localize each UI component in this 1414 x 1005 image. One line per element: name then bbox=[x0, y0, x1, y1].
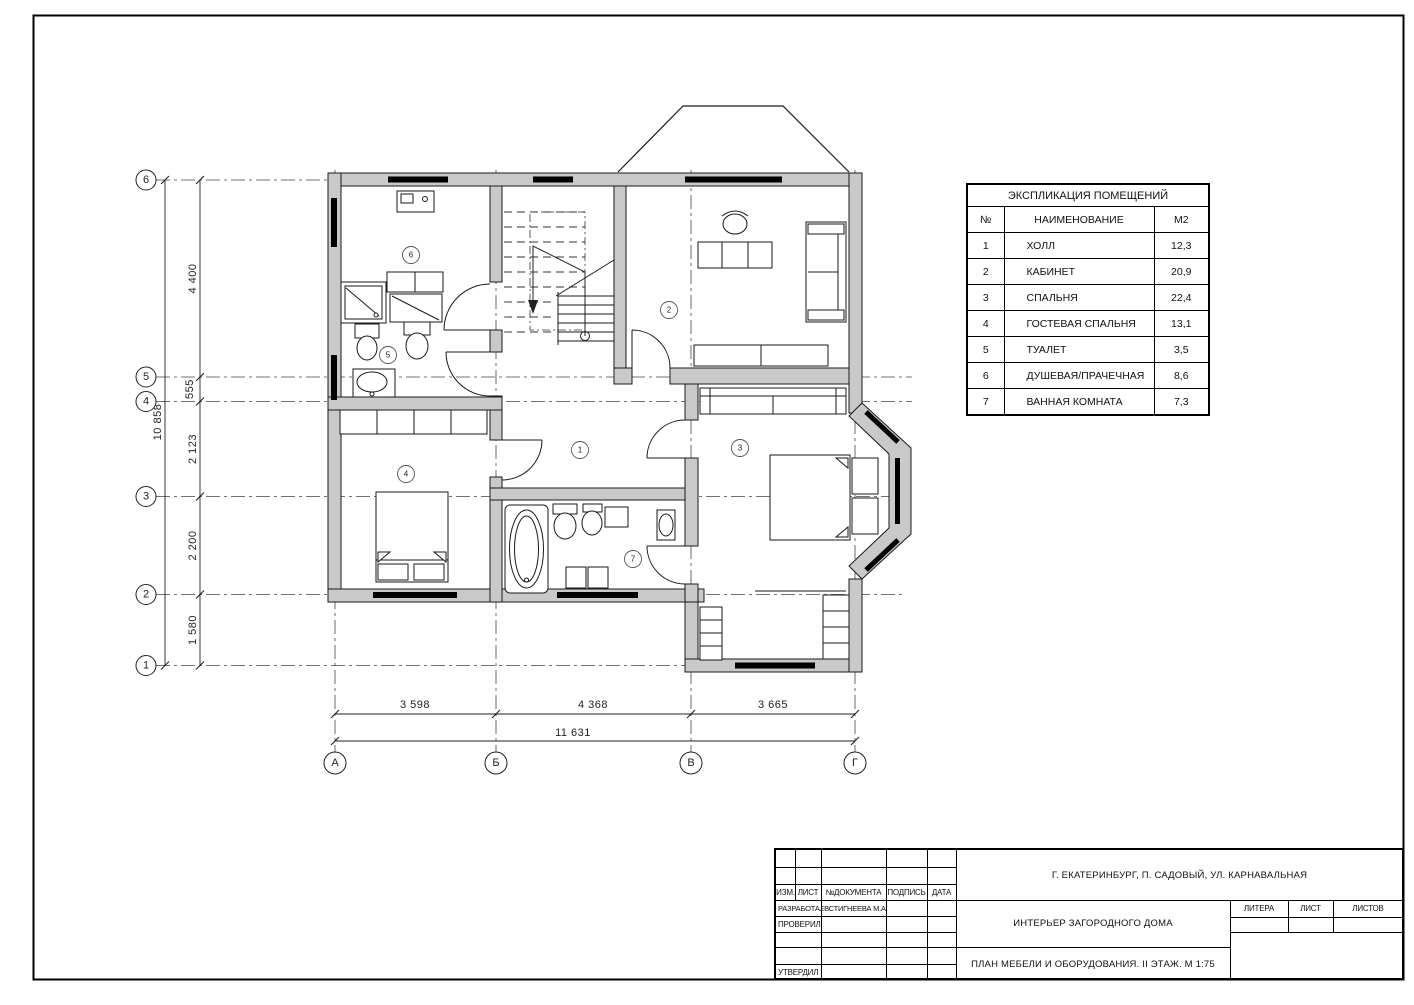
roof-outline bbox=[618, 106, 849, 172]
room-name: ХОЛЛ bbox=[1004, 233, 1154, 259]
col-header-num: № bbox=[967, 207, 1004, 233]
room-number-hall: 1 bbox=[578, 446, 583, 455]
axis-1: 1 bbox=[143, 660, 149, 672]
room-area: 7,3 bbox=[1154, 389, 1209, 416]
table-row: 6ДУШЕВАЯ/ПРАЧЕЧНАЯ8,6 bbox=[967, 363, 1209, 389]
table-row: 3СПАЛЬНЯ22,4 bbox=[967, 285, 1209, 311]
dimension-labels-bottom: 3 598 4 368 3 665 11 631 bbox=[400, 699, 788, 739]
tb-label-listov: ЛИСТОВ bbox=[1333, 900, 1403, 917]
room-name: ДУШЕВАЯ/ПРАЧЕЧНАЯ bbox=[1004, 363, 1154, 389]
tb-label-doc: №ДОКУМЕНТА bbox=[821, 884, 886, 900]
room-name: ВАННАЯ КОМНАТА bbox=[1004, 389, 1154, 416]
dim-5-4: 555 bbox=[184, 379, 196, 399]
room-num: 3 bbox=[967, 285, 1004, 311]
sheet-frame bbox=[34, 16, 1404, 980]
tb-label-data: ДАТА bbox=[927, 884, 956, 900]
axis-a: А bbox=[331, 757, 339, 769]
explication-title: ЭКСПЛИКАЦИЯ ПОМЕЩЕНИЙ bbox=[967, 184, 1209, 207]
room-number-shower: 6 bbox=[409, 251, 414, 260]
dimension-lines-left bbox=[161, 176, 204, 670]
axis-2: 2 bbox=[143, 589, 149, 601]
room-name: ГОСТЕВАЯ СПАЛЬНЯ bbox=[1004, 311, 1154, 337]
room-area: 8,6 bbox=[1154, 363, 1209, 389]
room-name: СПАЛЬНЯ bbox=[1004, 285, 1154, 311]
dim-bottom-total: 11 631 bbox=[555, 727, 591, 739]
room-number-wc: 5 bbox=[386, 351, 391, 360]
dim-a-b: 3 598 bbox=[400, 699, 430, 711]
dimension-lines-bottom bbox=[331, 710, 859, 745]
room-num: 5 bbox=[967, 337, 1004, 363]
room-area: 22,4 bbox=[1154, 285, 1209, 311]
room-area: 20,9 bbox=[1154, 259, 1209, 285]
room-num: 1 bbox=[967, 233, 1004, 259]
dim-4-3: 2 123 bbox=[187, 434, 199, 464]
explication-header-row: № НАИМЕНОВАНИЕ М2 bbox=[967, 207, 1209, 233]
table-row: 4ГОСТЕВАЯ СПАЛЬНЯ13,1 bbox=[967, 311, 1209, 337]
staircase bbox=[504, 212, 614, 345]
tb-label-razrabotal: РАЗРАБОТАЛ bbox=[776, 900, 823, 916]
room-num: 7 bbox=[967, 389, 1004, 416]
room-num: 4 bbox=[967, 311, 1004, 337]
dim-v-g: 3 665 bbox=[758, 699, 788, 711]
room-number-cabinet: 2 bbox=[667, 306, 672, 315]
table-row: 5ТУАЛЕТ3,5 bbox=[967, 337, 1209, 363]
table-row: 7ВАННАЯ КОМНАТА7,3 bbox=[967, 389, 1209, 416]
room-name: ТУАЛЕТ bbox=[1004, 337, 1154, 363]
table-row: 1ХОЛЛ12,3 bbox=[967, 233, 1209, 259]
dim-left-total: 10 858 bbox=[152, 404, 164, 441]
room-area: 13,1 bbox=[1154, 311, 1209, 337]
tb-label-izm: ИЗМ. bbox=[776, 884, 795, 900]
dim-6-5: 4 400 bbox=[187, 263, 199, 293]
axis-g: Г bbox=[852, 757, 858, 769]
table-row: 2КАБИНЕТ20,9 bbox=[967, 259, 1209, 285]
dim-b-v: 4 368 bbox=[578, 699, 608, 711]
axis-b: Б bbox=[492, 757, 499, 769]
title-block: ИЗМ. ЛИСТ №ДОКУМЕНТА ПОДПИСЬ ДАТА РАЗРАБ… bbox=[774, 848, 1404, 980]
dim-2-1: 1 580 bbox=[187, 615, 199, 645]
dimension-labels-left: 4 400 555 2 123 2 200 1 580 10 858 bbox=[152, 263, 199, 645]
tb-label-list2: ЛИСТ bbox=[1288, 900, 1333, 917]
room-area: 3,5 bbox=[1154, 337, 1209, 363]
room-num: 6 bbox=[967, 363, 1004, 389]
room-number-bath: 7 bbox=[631, 555, 636, 564]
axis-5: 5 bbox=[143, 371, 149, 383]
tb-label-litera: ЛИТЕРА bbox=[1230, 900, 1288, 917]
tb-sheet-title: ПЛАН МЕБЕЛИ И ОБОРУДОВАНИЯ. II ЭТАЖ. М 1… bbox=[956, 947, 1230, 982]
tb-address: Г. ЕКАТЕРИНБУРГ, П. САДОВЫЙ, УЛ. КАРНАВА… bbox=[956, 850, 1403, 900]
axis-6: 6 bbox=[143, 174, 149, 186]
room-area: 12,3 bbox=[1154, 233, 1209, 259]
room-number-bedroom: 3 bbox=[738, 444, 743, 453]
tb-developer-name: ЕВСТИГНЕЕВА М.А. bbox=[821, 900, 886, 916]
drawing-sheet: 1 2 3 4 5 6 7 4 400 555 2 123 2 200 1 58… bbox=[0, 0, 1414, 1000]
explication-table: ЭКСПЛИКАЦИЯ ПОМЕЩЕНИЙ № НАИМЕНОВАНИЕ М2 … bbox=[966, 183, 1210, 416]
dim-3-2: 2 200 bbox=[187, 530, 199, 560]
axis-3: 3 bbox=[143, 491, 149, 503]
room-number-guest-bedroom: 4 bbox=[404, 470, 409, 479]
tb-label-proveril: ПРОВЕРИЛ bbox=[776, 916, 823, 932]
axis-v: В bbox=[687, 757, 694, 769]
col-header-area: М2 bbox=[1154, 207, 1209, 233]
room-name: КАБИНЕТ bbox=[1004, 259, 1154, 285]
tb-label-list: ЛИСТ bbox=[795, 884, 821, 900]
axis-4: 4 bbox=[143, 396, 149, 408]
tb-project: ИНТЕРЬЕР ЗАГОРОДНОГО ДОМА bbox=[956, 900, 1230, 947]
tb-label-utverdil: УТВЕРДИЛ bbox=[776, 964, 823, 980]
tb-label-podpis: ПОДПИСЬ bbox=[886, 884, 927, 900]
room-num: 2 bbox=[967, 259, 1004, 285]
col-header-name: НАИМЕНОВАНИЕ bbox=[1004, 207, 1154, 233]
